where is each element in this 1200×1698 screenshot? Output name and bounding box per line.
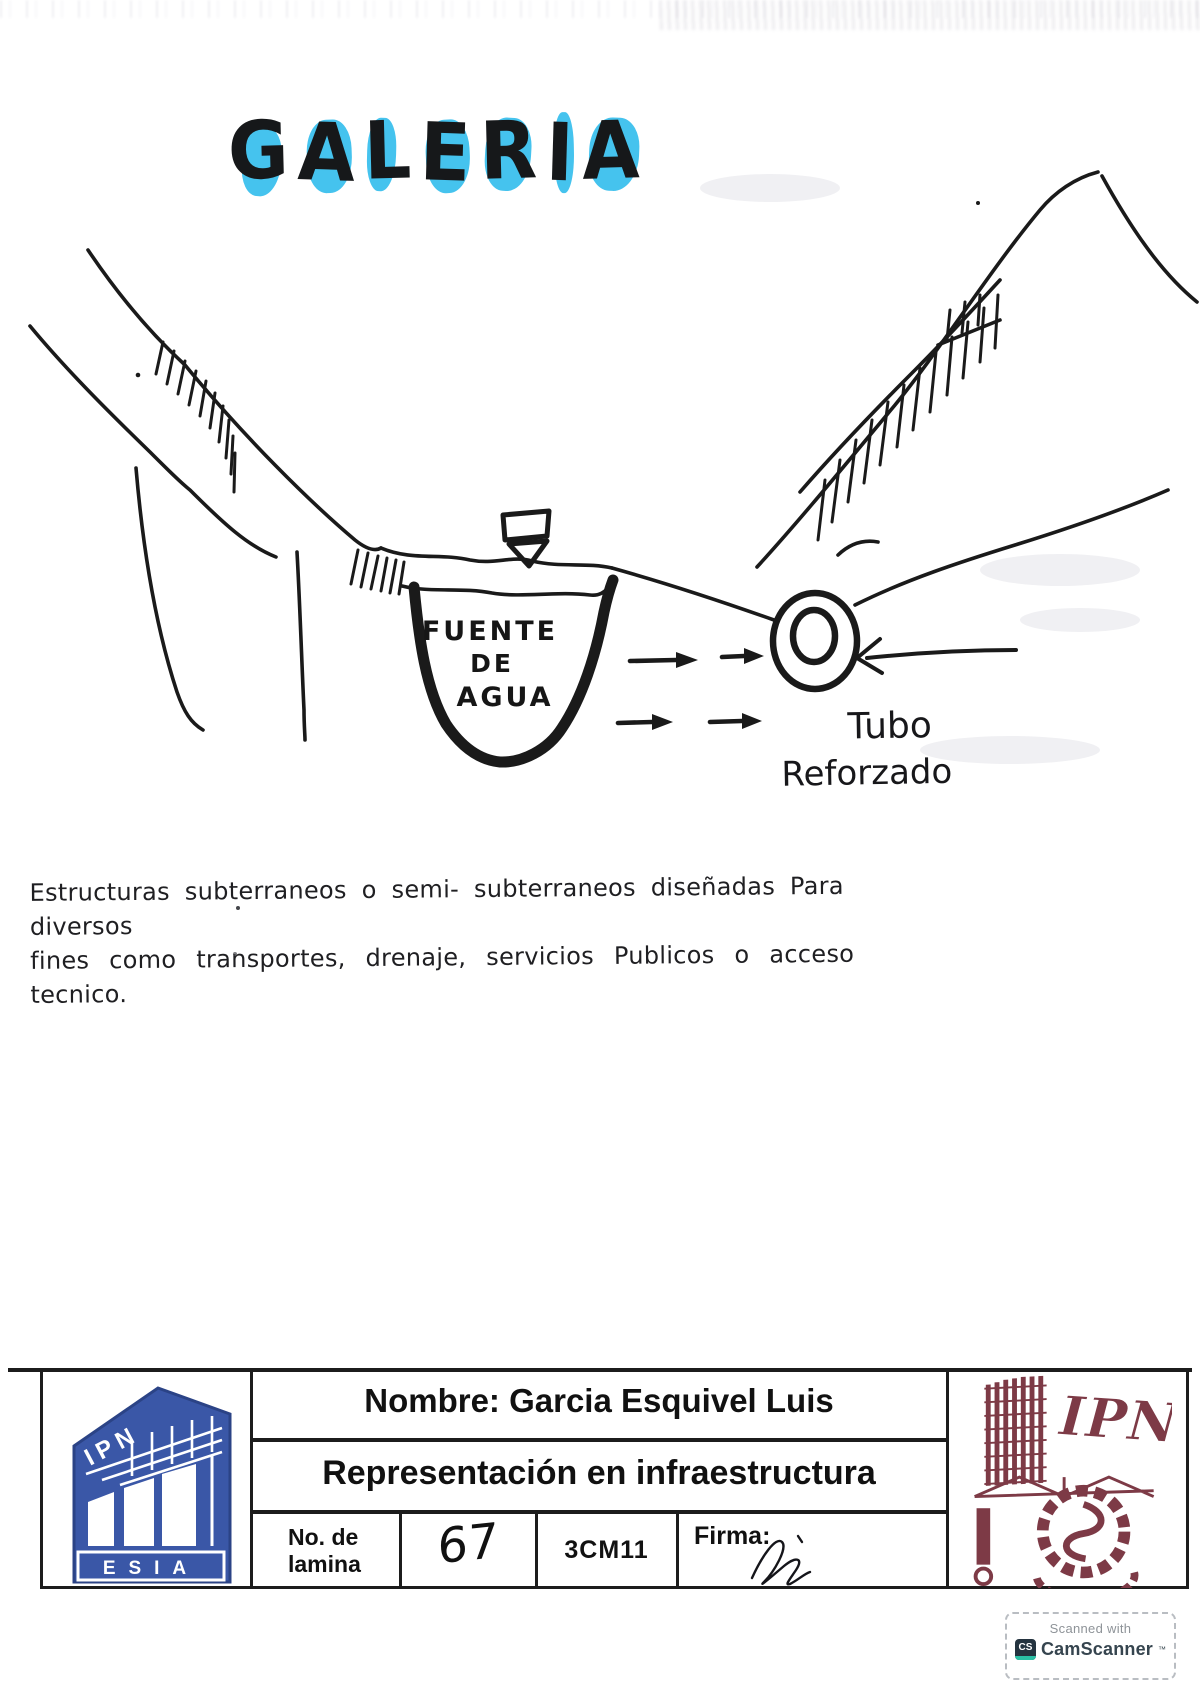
basin-rim-lines	[381, 548, 774, 620]
esia-logo: IPN ESIA	[62, 1382, 238, 1588]
svg-text:IPN: IPN	[1055, 1383, 1172, 1455]
sheet-label-line2: lamina	[288, 1551, 408, 1578]
svg-text:Tubo: Tubo	[846, 705, 932, 747]
galeria-sketch: FUENTE DE AGUA	[0, 150, 1200, 810]
title-block-right-border	[1186, 1372, 1189, 1588]
sheet-number-value: 67	[400, 1509, 535, 1580]
scan-noise-top-right	[660, 0, 1200, 30]
divider-row-1	[250, 1438, 949, 1442]
pen-dot	[233, 952, 237, 956]
group-code: 3CM11	[536, 1536, 677, 1565]
handwritten-note: Estructuras subterraneos o semi- subterr…	[29, 868, 930, 1012]
camscanner-brand-row: CS CamScanner ™	[1007, 1639, 1174, 1660]
pipe-circle	[773, 593, 857, 689]
right-slope-lines	[757, 172, 1197, 605]
note-line-1: Estructuras subterraneos o semi- subterr…	[29, 868, 930, 944]
signature-scribble	[746, 1528, 818, 1590]
camscanner-logo-icon: CS	[1015, 1639, 1036, 1660]
subject-row: Representación en infraestructura	[250, 1454, 948, 1493]
svg-text:Reforzado: Reforzado	[781, 752, 953, 795]
name-row: Nombre: Garcia Esquivel Luis	[250, 1382, 948, 1420]
svg-text:ESIA: ESIA	[103, 1558, 199, 1579]
camscanner-badge: Scanned with CS CamScanner ™	[1005, 1612, 1176, 1680]
note-line-2: fines como transportes, drenaje, servici…	[30, 936, 931, 1012]
scanned-with-text: Scanned with	[1007, 1621, 1174, 1636]
sheet-label-line1: No. de	[288, 1524, 408, 1551]
fuente-de-agua-label: FUENTE DE AGUA	[422, 616, 558, 713]
divider-row-2	[250, 1510, 949, 1514]
scan-ghost-marks	[700, 174, 1140, 764]
pipe-pointer-arrow	[857, 639, 1016, 673]
scanned-document-page: GALERIA	[0, 0, 1200, 1698]
title-block-left-border	[40, 1372, 43, 1588]
sheet-number-label: No. de lamina	[288, 1524, 408, 1578]
svg-text:DE: DE	[470, 649, 514, 678]
ipn-logo: IPN	[966, 1372, 1172, 1588]
trademark-symbol: ™	[1158, 1645, 1166, 1654]
pen-dot	[236, 906, 240, 910]
flow-arrows	[618, 648, 764, 730]
svg-text:AGUA: AGUA	[456, 682, 553, 713]
svg-text:FUENTE: FUENTE	[422, 616, 558, 647]
small-terrain-arc	[838, 541, 878, 555]
camscanner-brand-text: CamScanner	[1041, 1639, 1153, 1660]
